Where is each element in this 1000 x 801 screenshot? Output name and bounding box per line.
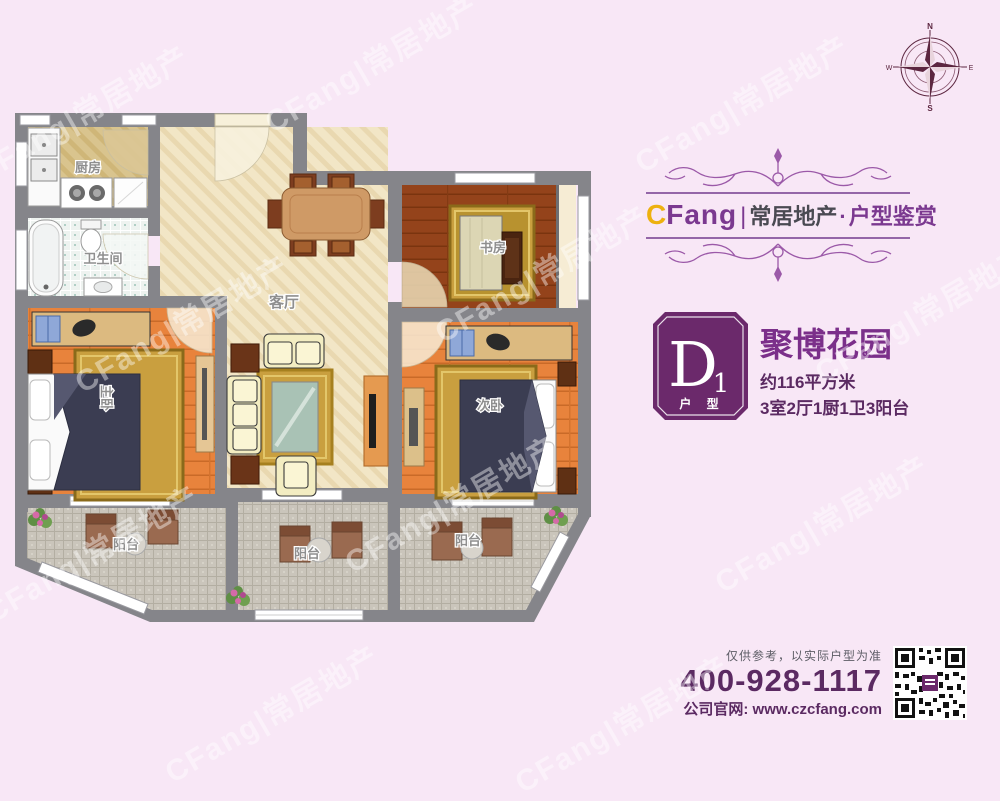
floor-plan: 厨房 卫生间 客厅 书房 主卧 次卧 阳台 阳台 阳台 (10, 108, 620, 628)
tv (369, 394, 376, 448)
property-layout: 3室2厅1厨1卫3阳台 (760, 394, 909, 419)
flourish-top (655, 146, 901, 190)
nightstand (558, 362, 576, 386)
study-label: 书房 (480, 240, 506, 255)
compass-n: N (927, 22, 933, 31)
second-bedroom-label: 次卧 (477, 398, 503, 413)
phone-number: 400-928-1117 (680, 664, 882, 698)
side-table (231, 344, 259, 372)
living-room-label: 客厅 (268, 293, 299, 311)
toilet (81, 220, 101, 229)
logo-letter-c: C (646, 199, 666, 230)
contact-block: 仅供参考，以实际户型为准 400-928-1117 公司官网: www.czcf… (680, 647, 882, 719)
company-name: 常居地产 (749, 204, 837, 229)
compass-rose: N S E W (885, 22, 975, 112)
unit-number: 1 (713, 369, 730, 399)
brand-logo: CFang|常居地产·户型鉴赏 (646, 192, 910, 239)
qr-code (893, 646, 967, 720)
floorplan-poster: { "watermark": { "text": "CFang|常居地产" },… (0, 0, 1000, 750)
unit-badge: D 1 户 型 (653, 312, 748, 420)
logo-fang: Fang (666, 199, 737, 230)
balcony-left-label: 阳台 (113, 537, 139, 552)
balcony-right-label: 阳台 (455, 533, 481, 548)
dining-table (282, 188, 370, 240)
compass-w: W (886, 65, 893, 72)
logo-divider: | (737, 203, 749, 230)
balcony-middle (226, 500, 400, 622)
nightstand (28, 350, 52, 374)
unit-letter: D (668, 328, 718, 401)
compass-e: E (969, 65, 974, 72)
watermark-text: CFang|常居地产 (705, 443, 936, 602)
balcony-middle-label: 阳台 (294, 546, 320, 561)
unit-type-label: 户 型 (679, 396, 724, 411)
watermark-text: CFang|常居地产 (155, 633, 386, 792)
flourish-bottom (655, 240, 901, 284)
disclaimer-text: 仅供参考，以实际户型为准 (680, 647, 882, 664)
study-bay-window (558, 185, 576, 308)
kitchen-label: 厨房 (75, 160, 101, 175)
compass-s: S (927, 104, 933, 112)
property-name: 聚博花园 (760, 318, 892, 366)
website-url: 公司官网: www.czcfang.com (680, 698, 882, 719)
brand-tagline: 户型鉴赏 (849, 204, 937, 229)
master-bedroom-label: 主卧 (99, 385, 114, 411)
logo-dot: · (837, 204, 848, 229)
bathroom-label: 卫生间 (83, 251, 122, 266)
property-area: 约116平方米 (760, 368, 855, 393)
